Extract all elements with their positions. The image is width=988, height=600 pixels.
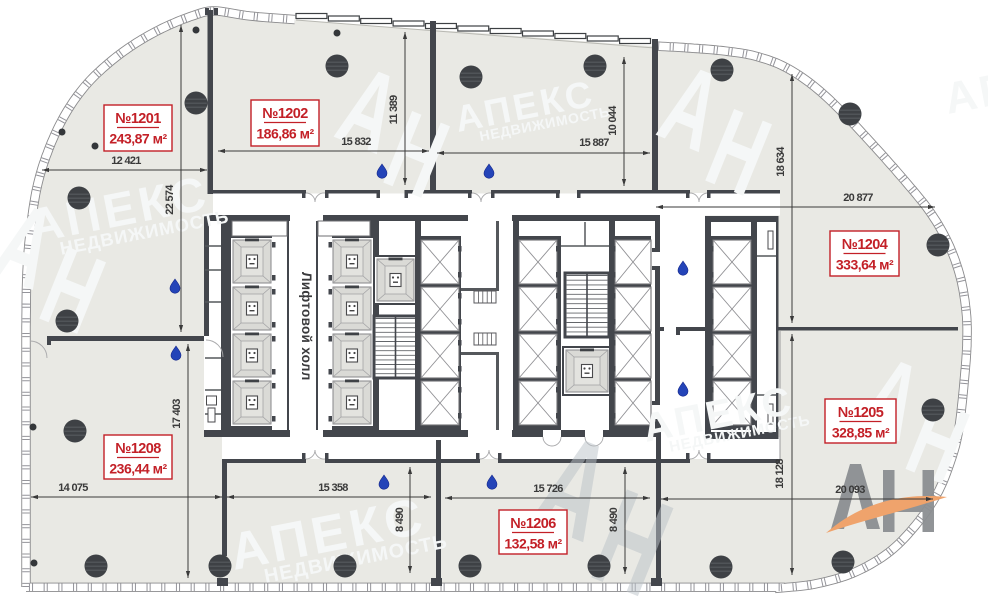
svg-text:132,58 м²: 132,58 м² — [504, 536, 562, 552]
svg-text:18 128: 18 128 — [774, 459, 786, 489]
svg-text:Лифтовой холл: Лифтовой холл — [299, 272, 314, 381]
svg-text:№1208: №1208 — [115, 441, 161, 457]
svg-text:№1204: №1204 — [842, 237, 888, 253]
svg-text:8 490: 8 490 — [394, 507, 406, 532]
svg-text:20 877: 20 877 — [843, 192, 873, 204]
svg-text:15 726: 15 726 — [533, 483, 563, 495]
svg-text:20 093: 20 093 — [835, 484, 865, 496]
svg-text:333,64 м²: 333,64 м² — [836, 257, 894, 273]
svg-text:№1201: №1201 — [115, 111, 161, 127]
svg-text:11 389: 11 389 — [388, 95, 400, 124]
svg-text:15 832: 15 832 — [341, 136, 371, 148]
svg-text:243,87 м²: 243,87 м² — [109, 131, 167, 147]
svg-text:№1202: №1202 — [262, 106, 308, 122]
svg-text:10 044: 10 044 — [607, 105, 619, 136]
svg-text:14 075: 14 075 — [58, 482, 88, 494]
svg-text:17 403: 17 403 — [171, 399, 183, 429]
svg-text:186,86 м²: 186,86 м² — [256, 126, 314, 142]
svg-text:12 421: 12 421 — [111, 155, 141, 167]
svg-text:15 358: 15 358 — [318, 482, 348, 494]
svg-text:18 634: 18 634 — [775, 146, 787, 177]
svg-text:8 490: 8 490 — [608, 507, 620, 532]
svg-text:№1205: №1205 — [838, 405, 884, 421]
svg-text:22 574: 22 574 — [164, 184, 176, 215]
svg-text:АПЕКС: АПЕКС — [941, 44, 988, 124]
svg-text:15 887: 15 887 — [579, 137, 609, 149]
svg-text:№1206: №1206 — [510, 516, 556, 532]
svg-text:236,44 м²: 236,44 м² — [109, 461, 167, 477]
svg-text:328,85 м²: 328,85 м² — [832, 425, 890, 441]
